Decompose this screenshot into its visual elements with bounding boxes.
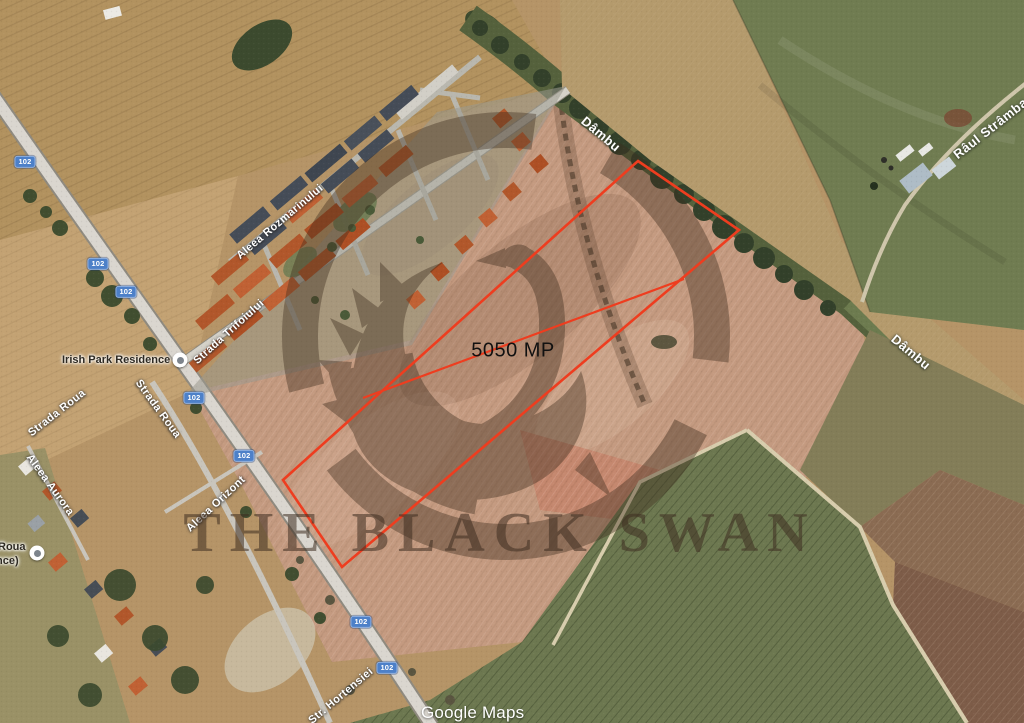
poi-label-clipped-line2: nce)	[0, 555, 19, 567]
road-badge: 102	[87, 258, 108, 270]
road-badge: 102	[233, 450, 254, 462]
poi-label-irish-park-residence: Irish Park Residence	[62, 354, 170, 366]
google-maps-attribution[interactable]: Google Maps	[421, 703, 524, 723]
satellite-map-canvas[interactable]: 102 102 102 102 102 102 102 Aleea Rozmar…	[0, 0, 1024, 723]
poi-label-clipped-line1: Roua	[0, 541, 26, 553]
road-badge: 102	[14, 156, 35, 168]
road-badge: 102	[183, 392, 204, 404]
road-badge: 102	[115, 286, 136, 298]
road-badge: 102	[376, 662, 397, 674]
poi-marker-clipped[interactable]	[30, 546, 45, 561]
poi-marker-irish-park-residence[interactable]	[173, 353, 188, 368]
road-badge: 102	[350, 616, 371, 628]
plot-area-label: 5050 MP	[471, 340, 555, 363]
